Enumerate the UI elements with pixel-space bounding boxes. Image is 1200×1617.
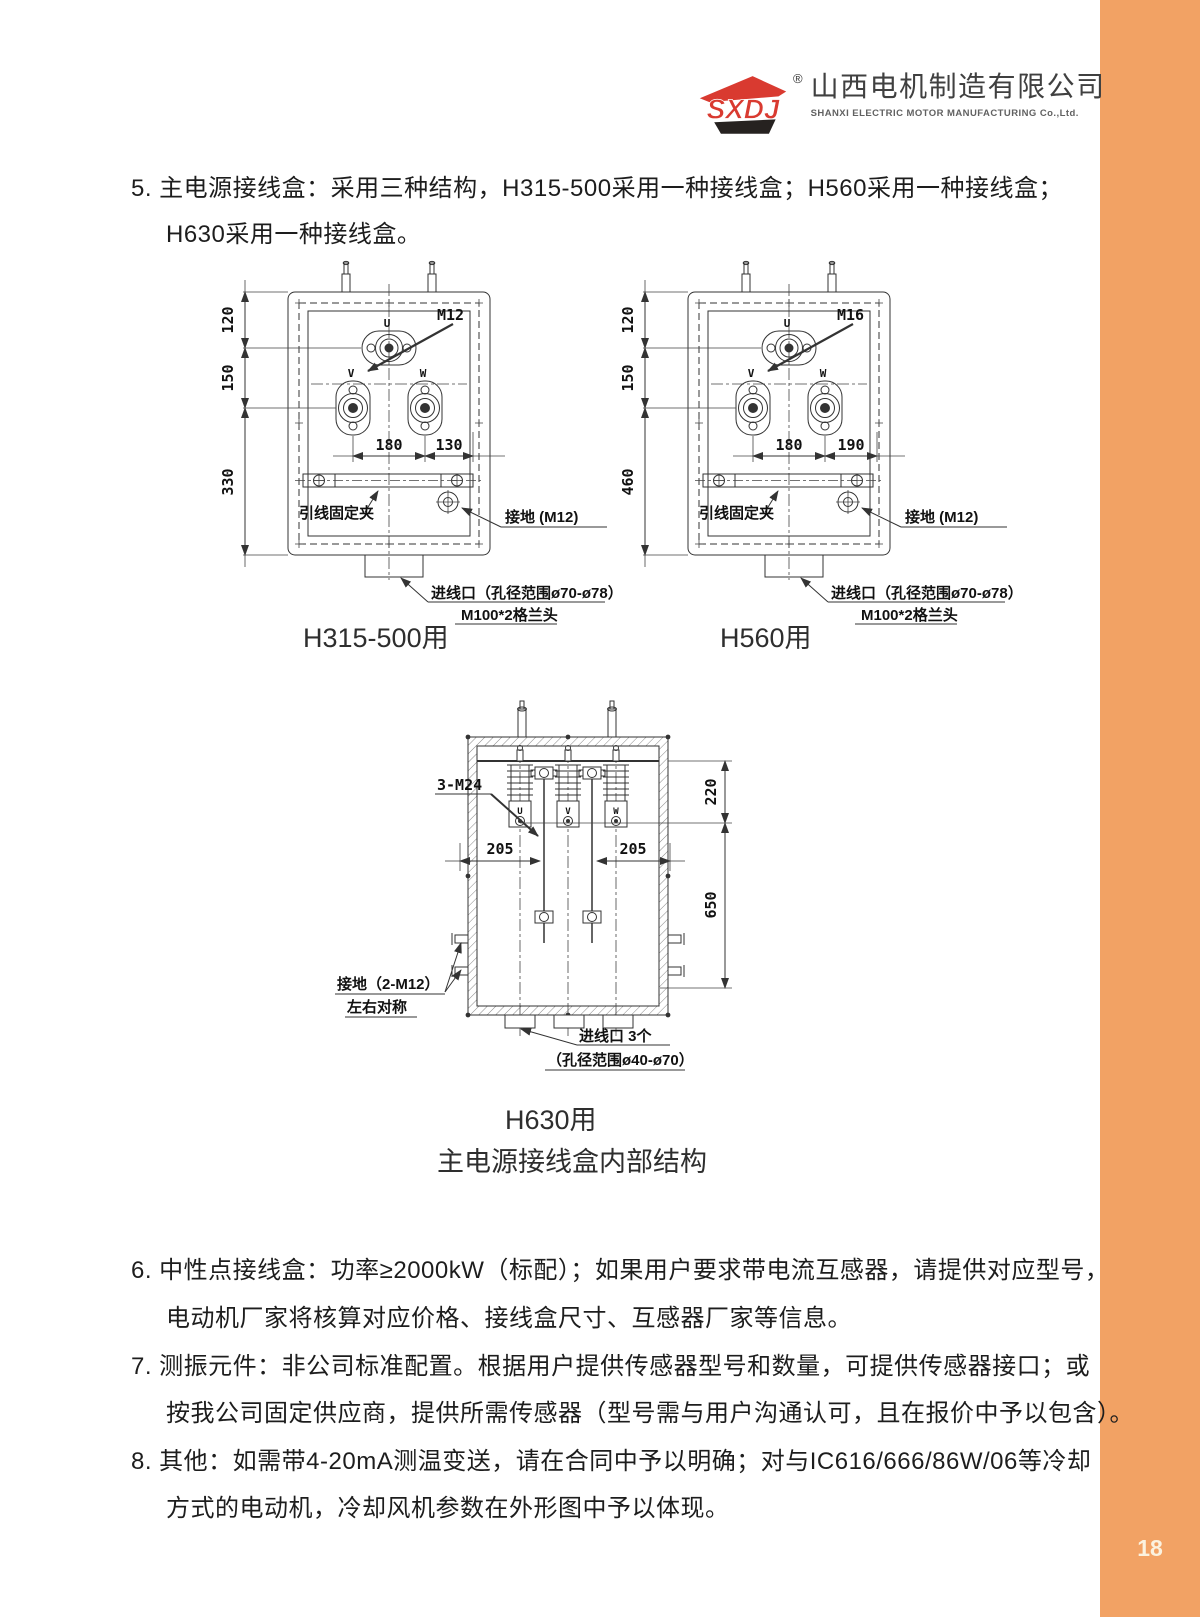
note6-line2: 电动机厂家将核算对应价格、接线盒尺寸、互感器厂家等信息。 bbox=[166, 1298, 852, 1333]
ground-label-1: 接地（2-M12） bbox=[337, 975, 440, 993]
caption-h630: H630用 bbox=[505, 1098, 597, 1137]
dim-bottom: 330 bbox=[219, 468, 237, 495]
inlet-label-1: 进线口（孔径范围ø70-ø78） bbox=[831, 584, 1023, 602]
inlet-label-1: 进线口（孔径范围ø70-ø78） bbox=[431, 584, 623, 602]
lead-clamp-bar bbox=[695, 474, 881, 487]
dim-220: 220 bbox=[702, 778, 720, 805]
terminal-v-label: V bbox=[748, 367, 755, 380]
terminal-u-label: U bbox=[384, 317, 391, 330]
inlet-tab bbox=[365, 555, 423, 577]
ground-label-2: 左右对称 bbox=[346, 998, 407, 1016]
mounting-bolt bbox=[828, 261, 836, 292]
company-logo: SXDJ ® 山西电机制造有限公司 SHANXI ELECTRIC MOTOR … bbox=[695, 72, 1106, 136]
dim-wr: 130 bbox=[435, 436, 462, 454]
drawing-h315-500: U V W M12 180 130 120 150 330 引线固定夹 接地 (… bbox=[215, 250, 645, 650]
inlet-label-2: M100*2格兰头 bbox=[861, 606, 958, 624]
registered-mark: ® bbox=[793, 72, 803, 85]
page-number: 18 bbox=[1100, 1535, 1200, 1562]
ground-label: 接地 (M12) bbox=[905, 508, 978, 526]
dim-right-205: 205 bbox=[619, 840, 646, 858]
terminal-w-label: W bbox=[420, 367, 427, 380]
sxdj-logo-icon: SXDJ bbox=[695, 72, 791, 136]
ground-bolt bbox=[836, 490, 860, 514]
terminal-w bbox=[808, 381, 842, 435]
terminal-v-label: V bbox=[348, 367, 355, 380]
mounting-bolt bbox=[608, 701, 617, 737]
lead-clamp-bar bbox=[295, 474, 481, 487]
note7-line2: 按我公司固定供应商，提供所需传感器（型号需与用户沟通认可，且在报价中予以包含）。 bbox=[166, 1393, 1134, 1428]
terminal-v bbox=[736, 381, 770, 435]
inlet-tab bbox=[505, 1015, 535, 1028]
accent-strip bbox=[1100, 0, 1200, 1617]
clamp-label: 引线固定夹 bbox=[699, 504, 774, 522]
stud-size-label: 3-M24 bbox=[437, 776, 482, 794]
ground-bolt bbox=[668, 933, 684, 977]
inlet-label-1: 进线口 3个 bbox=[579, 1027, 653, 1045]
ground-label: 接地 (M12) bbox=[505, 508, 578, 526]
terminal-w-label: W bbox=[613, 807, 619, 817]
terminal-w-label: W bbox=[820, 367, 827, 380]
terminal-v bbox=[336, 381, 370, 435]
note7-line1: 7. 测振元件：非公司标准配置。根据用户提供传感器型号和数量，可提供传感器接口；… bbox=[131, 1346, 1090, 1381]
inlet-label-2: （孔径范围ø40-ø70） bbox=[547, 1051, 694, 1069]
cable-clamp bbox=[583, 911, 601, 923]
dim-top: 120 bbox=[219, 306, 237, 333]
dim-mid: 150 bbox=[219, 364, 237, 391]
clamp-label: 引线固定夹 bbox=[299, 504, 374, 522]
terminal-w bbox=[408, 381, 442, 435]
drawing-h560: U V W M16 180 190 120 150 460 引线固定夹 接地 (… bbox=[615, 250, 1045, 650]
inlet-label-2: M100*2格兰头 bbox=[461, 606, 558, 624]
terminal-v-label: V bbox=[565, 807, 571, 817]
mounting-bolt bbox=[342, 261, 350, 292]
catalog-page: 18 SXDJ ® 山西电机制造有限公司 SHANXI ELECTRIC MOT… bbox=[0, 0, 1200, 1617]
drawing-h630: U V W 3-M24 205 205 220 650 接地（2-M12） 左右… bbox=[325, 693, 795, 1093]
dim-vw: 180 bbox=[775, 436, 802, 454]
mounting-bolt bbox=[428, 261, 436, 292]
dim-left-205: 205 bbox=[486, 840, 513, 858]
terminal-u-label: U bbox=[784, 317, 791, 330]
cable-clamp bbox=[579, 767, 605, 779]
inlet-tab bbox=[765, 555, 823, 577]
dim-top: 120 bbox=[619, 306, 637, 333]
dim-vw: 180 bbox=[375, 436, 402, 454]
company-name-cn: 山西电机制造有限公司 bbox=[811, 72, 1106, 103]
cable-clamp bbox=[531, 767, 557, 779]
dim-bottom: 460 bbox=[619, 468, 637, 495]
ground-bolt bbox=[436, 490, 460, 514]
ground-bolt bbox=[452, 933, 468, 977]
caption-h315-500: H315-500用 bbox=[303, 616, 449, 655]
dim-wr: 190 bbox=[837, 436, 864, 454]
note8-line2: 方式的电动机，冷却风机参数在外形图中予以体现。 bbox=[166, 1488, 730, 1523]
caption-h560: H560用 bbox=[720, 616, 812, 655]
company-name-en: SHANXI ELECTRIC MOTOR MANUFACTURING Co.,… bbox=[811, 108, 1106, 119]
dim-mid: 150 bbox=[619, 364, 637, 391]
mounting-bolt bbox=[742, 261, 750, 292]
terminal-u-label: U bbox=[517, 807, 522, 817]
inlet-tab bbox=[554, 1015, 584, 1028]
note5-line2: H630采用一种接线盒。 bbox=[166, 214, 421, 249]
cable-clamp bbox=[535, 911, 553, 923]
stud-size-label: M12 bbox=[437, 306, 464, 324]
mounting-bolt bbox=[518, 701, 527, 737]
note6-line1: 6. 中性点接线盒：功率≥2000kW（标配）；如果用户要求带电流互感器，请提供… bbox=[131, 1250, 1109, 1285]
inlet-tab bbox=[603, 1015, 633, 1028]
figure-title: 主电源接线盒内部结构 bbox=[437, 1140, 707, 1179]
note5-line1: 5. 主电源接线盒：采用三种结构，H315-500采用一种接线盒；H560采用一… bbox=[131, 168, 1063, 203]
dim-650: 650 bbox=[702, 891, 720, 918]
note8-line1: 8. 其他：如需带4-20mA测温变送，请在合同中予以明确；对与IC616/66… bbox=[131, 1441, 1091, 1476]
stud-size-label: M16 bbox=[837, 306, 864, 324]
